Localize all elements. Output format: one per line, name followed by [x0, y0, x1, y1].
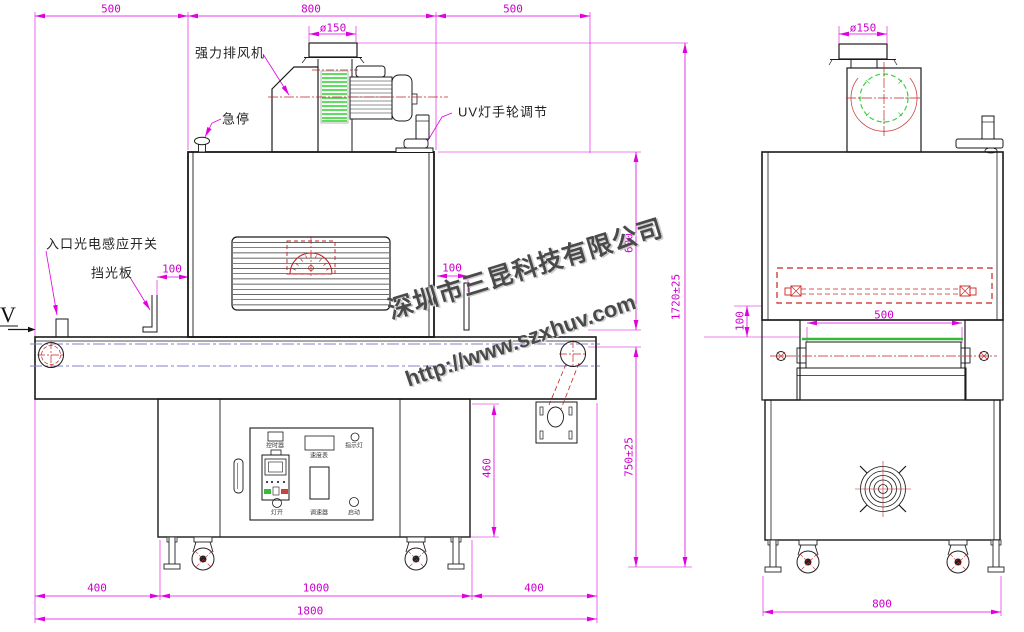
label-light-shield: 挡光板	[91, 263, 133, 282]
label-entry-sensor: 入口光电感应开关	[46, 234, 158, 253]
start-button	[350, 498, 359, 507]
door-handle	[234, 459, 243, 493]
light-shield-plate-entry	[143, 295, 157, 332]
dim-bottom-middle-1000: 1000	[303, 582, 330, 595]
panel-label-speed-meter: 速度表	[310, 451, 328, 460]
uv-lamp-assembly	[777, 268, 992, 303]
vfd-unit	[262, 450, 289, 500]
panel-label-speed-knob: 调速器	[310, 508, 328, 517]
panel-label-start: 启动	[348, 508, 360, 517]
dim-duct-diameter-front: ø150	[320, 22, 347, 35]
feed-direction-v: V	[0, 302, 16, 328]
dim-top-middle-800: 800	[301, 3, 321, 16]
panel-label-timer: 控时器	[266, 441, 284, 450]
conveyor-roller-side	[806, 342, 961, 368]
speed-meter-window	[305, 436, 334, 450]
dim-total-length-1800: 1800	[297, 605, 324, 618]
bearing-block-left	[762, 320, 800, 400]
drawing-linework	[0, 0, 1024, 632]
duct-flange-cap	[302, 43, 364, 63]
dim-belt-width-500: 500	[874, 309, 894, 322]
belt-motor-bracket	[536, 402, 577, 443]
speed-knob	[310, 467, 329, 499]
front-view	[0, 43, 600, 570]
dim-overall-width-800: 800	[872, 598, 892, 611]
side-view-details	[770, 62, 997, 517]
dim-lamp-to-belt-100: 100	[734, 311, 747, 331]
label-uv-handwheel: UV灯手轮调节	[458, 102, 548, 121]
label-exhaust-fan: 强力排风机	[195, 43, 265, 62]
label-emergency-stop: 急停	[222, 109, 250, 128]
dim-bottom-left-400: 400	[87, 582, 107, 595]
dim-top-left-500: 500	[101, 3, 121, 16]
panel-label-indicator: 指示灯	[345, 441, 363, 450]
entry-photo-sensor	[56, 319, 68, 337]
uv-curing-machine-drawing: 强力排风机 急停 UV灯手轮调节 入口光电感应开关 挡光板 V 500 800 …	[0, 0, 1024, 632]
panel-label-lamp-switch: 灯开	[271, 508, 283, 517]
dim-stand-height-460: 460	[481, 458, 494, 478]
side-cabinet	[765, 400, 1000, 540]
dim-top-right-500: 500	[503, 3, 523, 16]
emergency-stop-button	[195, 137, 210, 152]
dim-total-height-1720: 1720±25	[670, 274, 683, 320]
fan-motor	[350, 66, 417, 121]
dim-duct-diameter-side: ø150	[850, 22, 877, 35]
dim-belt-height-750: 750±25	[623, 437, 636, 477]
uv-handwheel-side	[956, 116, 1003, 153]
duct-flange-cap-side	[829, 44, 897, 65]
dim-shield-gap-left: 100	[162, 263, 182, 276]
dim-bottom-right-400: 400	[524, 582, 544, 595]
bearing-block-right	[965, 320, 1003, 400]
side-body	[762, 152, 1003, 320]
